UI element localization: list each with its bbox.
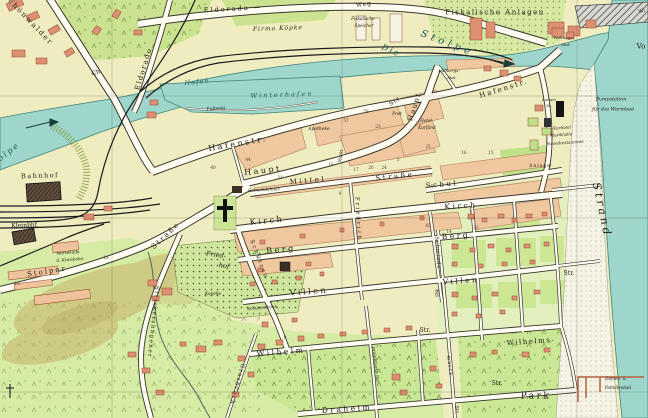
label-mittelstr-2: Straße <box>375 171 414 182</box>
map-labels: SchönwalderCh.EldoradoEldorado —WegFirma… <box>0 0 648 418</box>
label-post: Post <box>392 113 402 118</box>
house-number: 57 <box>343 119 348 123</box>
label-bergstr-west: Berg <box>266 244 296 255</box>
label-eldoradoweg-2: Weg <box>356 1 373 9</box>
house-number: 14 <box>446 230 451 234</box>
house-number: 15 <box>488 151 493 155</box>
label-musikhalle: Musikhalle <box>550 132 573 138</box>
label-projektierte-str: projektierte Str. <box>370 347 378 384</box>
label-hafenstr-west: Hafenstr. <box>208 135 268 153</box>
label-firma-koepke: Firma Köpke <box>253 25 303 33</box>
label-hallbergs-stat-2: Stat. <box>447 76 457 80</box>
house-number: 44 <box>245 158 250 162</box>
label-eldorado-street: Eldorado <box>134 47 154 91</box>
label-familienbad-2: Familienbad <box>605 386 631 390</box>
house-number: 45 <box>425 224 430 228</box>
house-number: 16 <box>461 151 466 155</box>
label-rettungs-stat-2: Stat. <box>561 43 571 47</box>
label-stolper-str-2: Straße <box>150 221 181 251</box>
label-apotheke: Apotheke <box>308 128 330 133</box>
label-bismarck-1: Bis <box>433 289 439 297</box>
label-bahnhof: Bahnhof <box>21 172 59 180</box>
label-familienbad-1: Damen- u. <box>605 377 627 381</box>
label-schuetzenhaus: Schützenhaus <box>247 305 277 312</box>
house-number: 58 <box>363 110 368 114</box>
label-schmiedestr: Schmiede <box>433 236 440 269</box>
label-lotsen-2: St. <box>546 104 552 108</box>
label-die-stolpe-2: Stolpe <box>419 29 475 59</box>
label-strickershagener: Strickershagener <box>145 286 158 359</box>
label-fussweg: Fußweg <box>207 107 226 113</box>
label-fiskalische-anlagen: Fiskalische Anlagen <box>445 10 545 17</box>
label-kleinbahnhof: Kleinbhf. <box>11 223 39 230</box>
label-markt: Markt <box>338 149 344 163</box>
label-hafen: Hafen <box>184 77 210 86</box>
house-number: 3 <box>397 158 400 162</box>
label-kurhotel: Kurhotel <box>553 125 571 130</box>
label-stolpe-west: Stolpe <box>0 141 21 171</box>
house-number: 17 <box>353 168 358 172</box>
label-str-ne: Str. <box>388 94 403 107</box>
label-kirchstr-west: Kirch <box>249 215 284 227</box>
label-str-mid: Str. <box>420 328 431 334</box>
label-wilhelmstr: Wilhelm <box>256 346 305 358</box>
house-number: 18 <box>103 256 108 260</box>
label-strandrestaurants: Strandrestaurants <box>546 140 583 147</box>
label-strand: Strand <box>591 182 613 239</box>
label-friedhof-2: hof <box>218 262 229 270</box>
label-fisk-speicher-1: Fiskalische <box>351 17 375 21</box>
label-kirchstr-east: Kirch <box>444 201 478 211</box>
label-chaussee-abbrev: Ch. <box>91 68 103 77</box>
label-grasbruch: Grasbruch <box>228 363 244 406</box>
label-friedhof-1: Fried- <box>206 250 227 259</box>
house-number: 24 <box>381 166 386 170</box>
label-gemeindehaus: Gemeindehaus <box>248 187 280 193</box>
label-eldoradoweg-1: Eldorado — <box>204 4 263 14</box>
label-str-se: Str. <box>492 381 503 387</box>
label-fisk-speicher-2: Speicher <box>355 24 374 28</box>
label-villenstr-east: Villen <box>442 276 479 286</box>
label-edge-vo: Vo <box>637 44 646 51</box>
label-str-corner: Str. <box>453 405 459 414</box>
label-die-stolpe-1: Die <box>380 43 401 58</box>
label-wartehalle-1: Wartehalle <box>56 250 79 256</box>
house-number: 9 <box>339 192 342 196</box>
house-number: 16 <box>328 163 333 167</box>
historical-town-map: SchönwalderCh.EldoradoEldorado —WegFirma… <box>0 0 648 418</box>
label-hotel-2: Kurfürst <box>418 126 436 130</box>
house-number: 12 <box>14 282 19 286</box>
label-stolper-str-1: Stolper <box>27 265 68 278</box>
label-hotel-1: Hotel <box>420 119 432 123</box>
house-number: 13 <box>473 226 478 230</box>
label-mittelstr-1: Mittel <box>290 176 327 186</box>
label-bismarck-2: marck <box>445 355 453 376</box>
label-friedrichstr: Friedrich <box>353 197 361 241</box>
label-str-east: Str. <box>564 271 575 277</box>
house-number: 23 <box>375 125 380 129</box>
house-number: 31 <box>277 176 282 180</box>
label-edge-wi: Wi <box>638 9 646 16</box>
label-lotsen-1: Lotsen <box>542 98 556 102</box>
house-number: 5 <box>431 185 434 189</box>
label-pumpstation-2: für das Warmbad <box>592 109 634 114</box>
house-number: 40 <box>210 166 215 170</box>
house-number: 25 <box>425 145 430 149</box>
label-winterhafen: Winterhafen <box>250 91 313 100</box>
label-pumpstation-1: Pumpstation <box>596 99 627 104</box>
label-hafenstr-east: Hafenstr. <box>479 78 530 100</box>
label-draheimstr: Draheim <box>322 404 373 415</box>
label-rettungs-stat-1: Rettungs- <box>554 36 574 40</box>
label-schoenwalder-ch: Schönwalder <box>2 0 55 47</box>
label-villenstr-west: Villen <box>290 286 329 297</box>
house-number: 20 <box>368 166 373 170</box>
label-wilhelms: Wilhelms- <box>507 337 556 347</box>
label-hallbergs-stat-1: Hallbergs- <box>438 69 459 73</box>
label-park: Park <box>521 393 552 402</box>
label-wartehalle-2: d. Kreisbahn <box>56 257 83 263</box>
label-anlage: Anlage <box>529 165 551 170</box>
label-kapelle: Kapelle <box>205 292 221 296</box>
house-number: 8 <box>284 336 287 340</box>
